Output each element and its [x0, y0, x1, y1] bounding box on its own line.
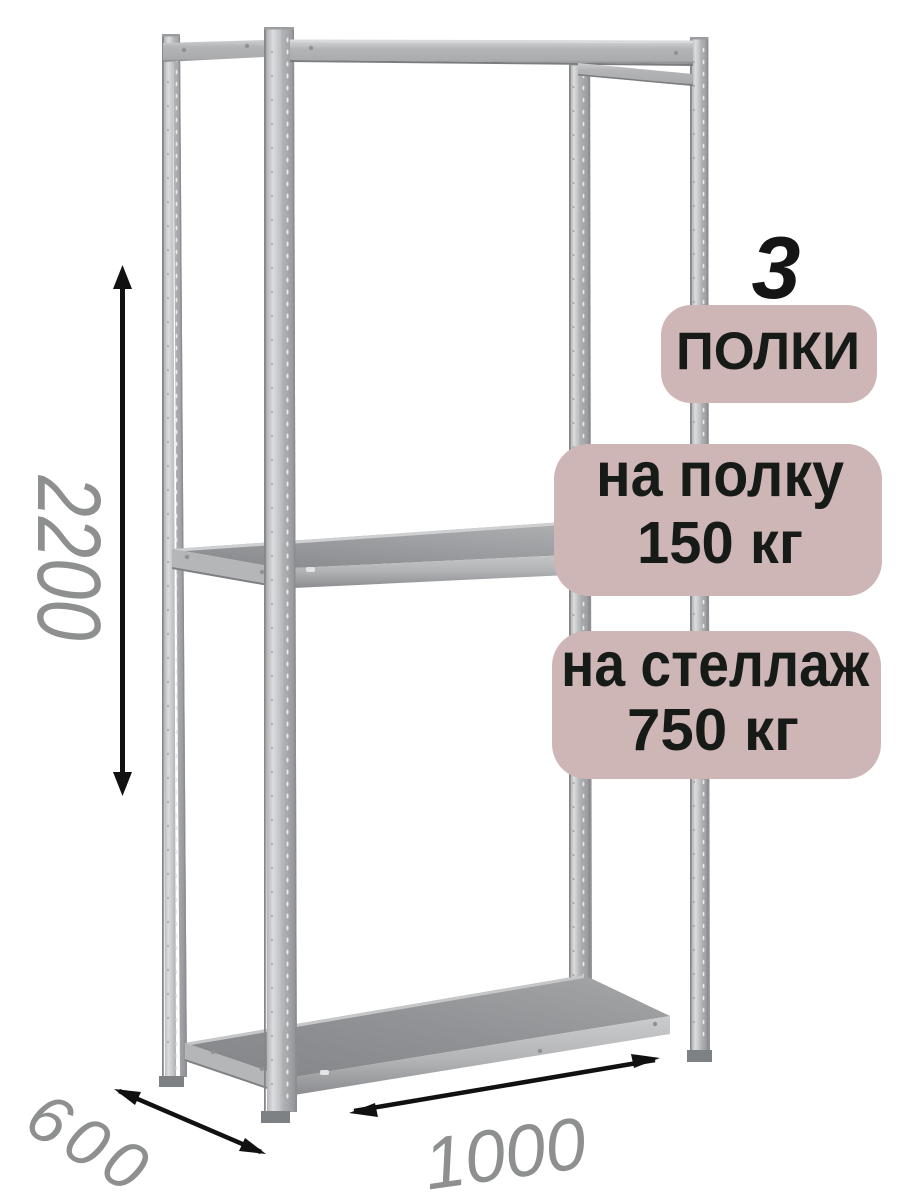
svg-text:на полку: на полку — [596, 440, 844, 510]
svg-text:750 кг: 750 кг — [627, 697, 799, 763]
svg-text:2200: 2200 — [18, 475, 118, 641]
svg-text:150 кг: 150 кг — [637, 510, 803, 576]
svg-text:3: 3 — [752, 218, 801, 317]
svg-text:ПОЛКИ: ПОЛКИ — [676, 322, 860, 381]
svg-text:на стеллаж: на стеллаж — [561, 630, 870, 700]
